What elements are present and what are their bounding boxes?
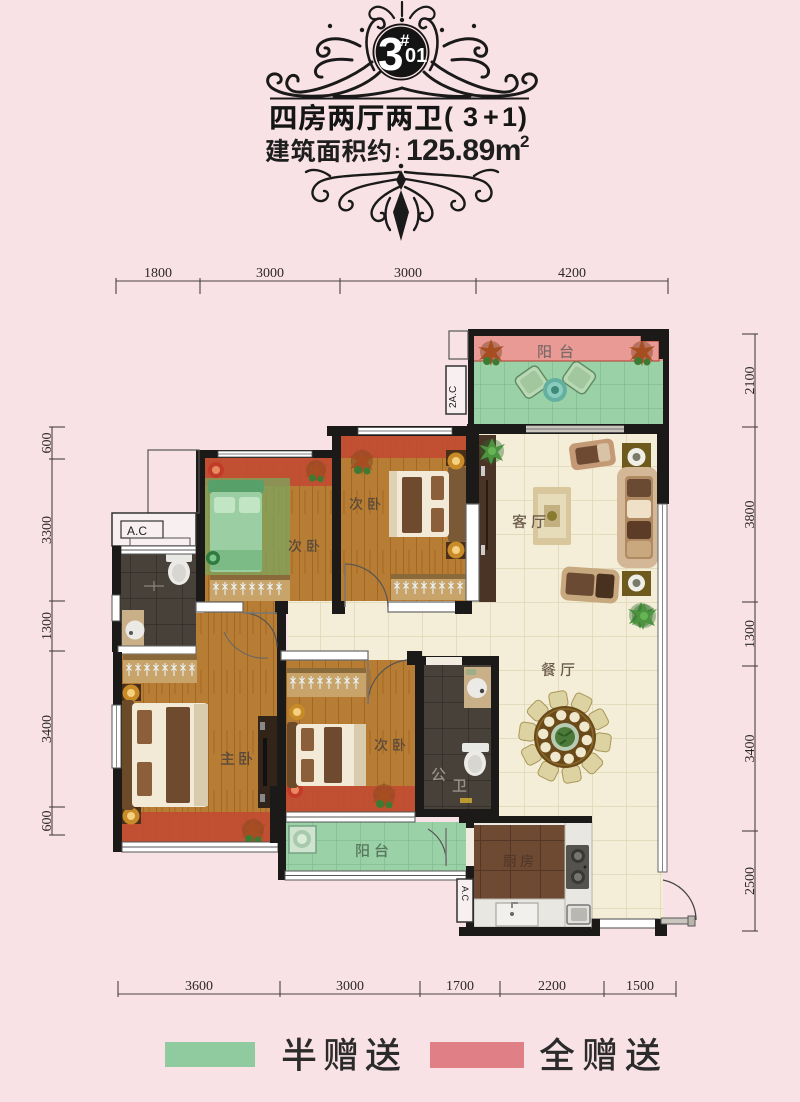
svg-text:600: 600 <box>40 811 55 832</box>
svg-text:600: 600 <box>40 433 55 454</box>
svg-text:3800: 3800 <box>743 501 758 529</box>
svg-text:A.C: A.C <box>127 524 147 538</box>
svg-text:2500: 2500 <box>743 867 758 895</box>
svg-text:(: ( <box>444 102 453 132</box>
svg-text:4200: 4200 <box>558 266 586 281</box>
svg-text:+: + <box>483 102 499 132</box>
svg-text:3: 3 <box>463 102 478 132</box>
svg-text:A.C: A.C <box>460 886 470 902</box>
svg-text:1800: 1800 <box>144 266 172 281</box>
svg-text:2: 2 <box>520 132 529 151</box>
svg-text:3000: 3000 <box>336 979 364 994</box>
svg-text:2200: 2200 <box>538 979 566 994</box>
svg-text:3400: 3400 <box>743 735 758 763</box>
svg-text:3300: 3300 <box>40 516 55 544</box>
svg-text:3600: 3600 <box>185 979 213 994</box>
svg-text:1300: 1300 <box>40 612 55 640</box>
svg-text:125.89m: 125.89m <box>406 134 521 167</box>
svg-text:2100: 2100 <box>743 367 758 395</box>
svg-text::: : <box>394 141 401 163</box>
svg-text:3000: 3000 <box>394 266 422 281</box>
svg-text:01: 01 <box>405 45 427 67</box>
svg-text:): ) <box>518 102 527 132</box>
svg-text:2A.C: 2A.C <box>448 386 459 408</box>
svg-text:1: 1 <box>502 102 517 132</box>
svg-text:3400: 3400 <box>40 715 55 743</box>
svg-text:1300: 1300 <box>743 620 758 648</box>
svg-text:3000: 3000 <box>256 266 284 281</box>
svg-text:1700: 1700 <box>446 979 474 994</box>
svg-text:1500: 1500 <box>626 979 654 994</box>
